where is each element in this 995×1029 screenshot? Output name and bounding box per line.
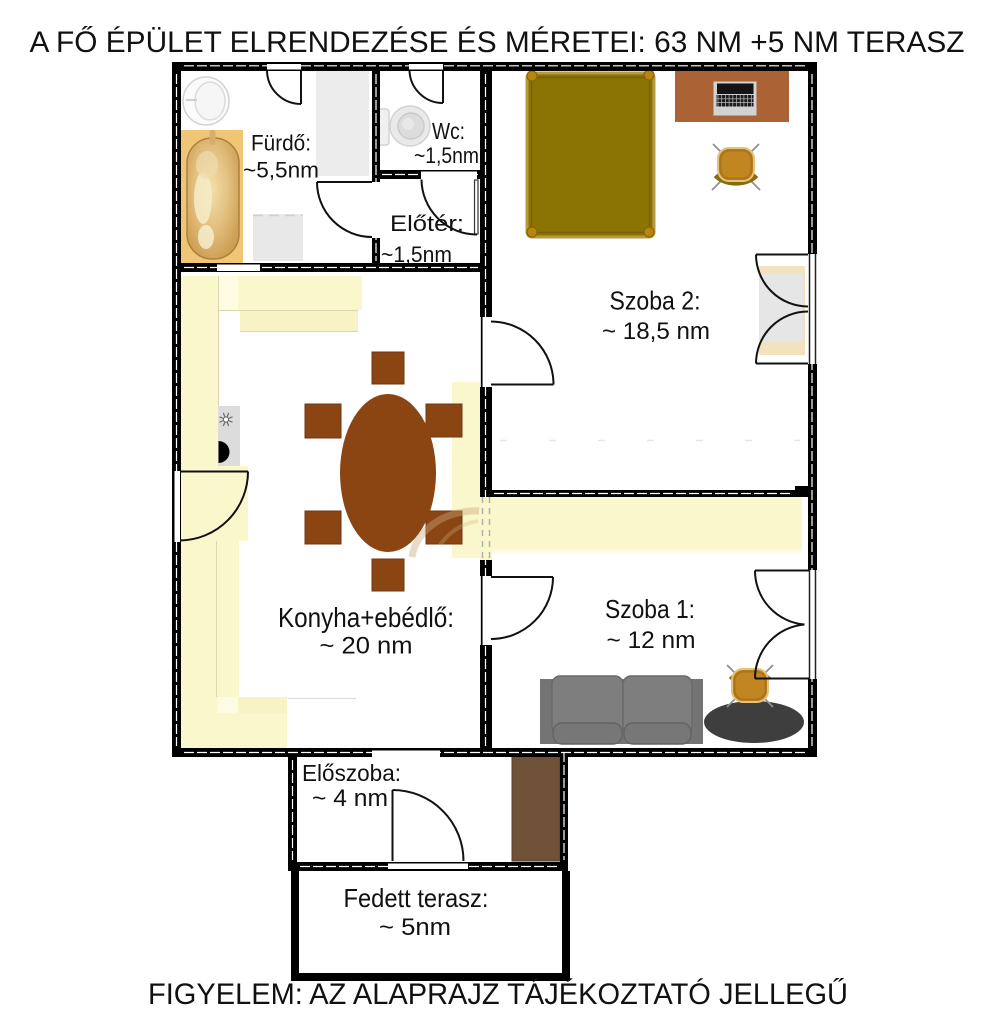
svg-text:~ 4 nm: ~ 4 nm [312,785,388,812]
svg-text:~ 5nm: ~ 5nm [379,914,451,941]
svg-text:A FŐ ÉPÜLET ELRENDEZÉSE ÉS MÉR: A FŐ ÉPÜLET ELRENDEZÉSE ÉS MÉRETEI: 63 N… [30,26,965,59]
svg-text:~ 12 nm: ~ 12 nm [607,627,696,654]
svg-text:~1,5nm: ~1,5nm [381,242,452,267]
svg-text:Előtér:: Előtér: [390,211,464,236]
svg-text:Fürdő:: Fürdő: [251,131,311,156]
svg-text:Fedett terasz:: Fedett terasz: [344,883,489,913]
svg-text:Szoba 2:: Szoba 2: [610,286,701,316]
svg-text:~1,5nm: ~1,5nm [414,143,479,168]
svg-text:FIGYELEM: AZ ALAPRAJZ TÁJÉKOZT: FIGYELEM: AZ ALAPRAJZ TÁJÉKOZTATÓ JELLEG… [148,978,848,1011]
svg-text:Konyha+ebédlő:: Konyha+ebédlő: [278,602,454,633]
svg-text:Szoba 1:: Szoba 1: [605,594,695,624]
svg-text:Előszoba:: Előszoba: [302,760,401,786]
svg-text:Wc:: Wc: [432,118,465,144]
svg-text:~ 20 nm: ~ 20 nm [320,633,413,660]
svg-text:~5,5nm: ~5,5nm [243,158,319,183]
svg-text:~ 18,5 nm: ~ 18,5 nm [602,318,710,345]
